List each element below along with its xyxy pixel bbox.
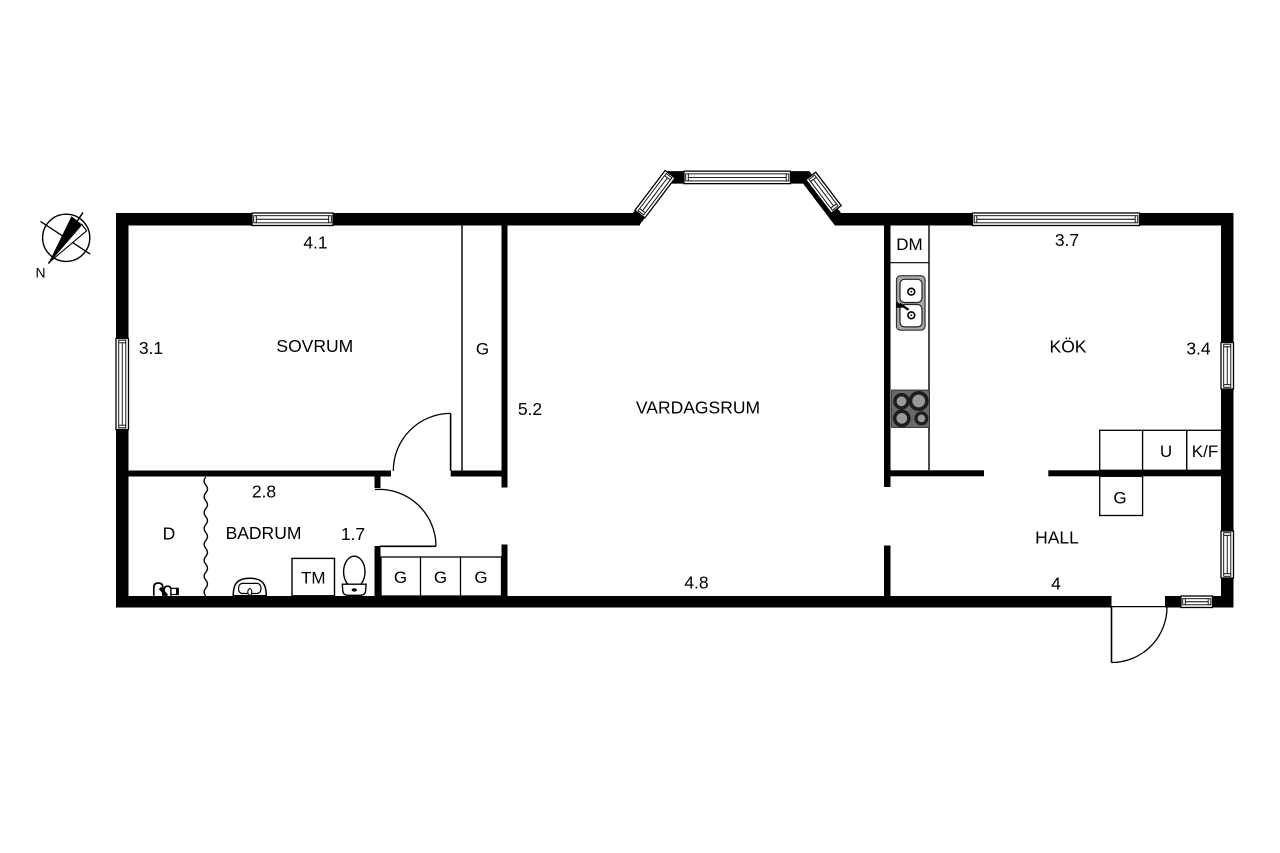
svg-text:U: U <box>1160 442 1172 461</box>
svg-text:G: G <box>434 568 447 587</box>
svg-text:4: 4 <box>1051 574 1061 594</box>
svg-text:4.1: 4.1 <box>303 232 327 252</box>
svg-text:D: D <box>163 524 176 544</box>
svg-text:5.2: 5.2 <box>518 399 542 419</box>
svg-text:3.4: 3.4 <box>1186 339 1211 359</box>
svg-text:HALL: HALL <box>1035 528 1079 548</box>
svg-text:G: G <box>1113 489 1126 508</box>
svg-text:K/F: K/F <box>1192 442 1218 461</box>
svg-text:G: G <box>474 568 487 587</box>
svg-text:SOVRUM: SOVRUM <box>276 336 353 356</box>
svg-text:TM: TM <box>301 569 326 588</box>
svg-text:KÖK: KÖK <box>1050 337 1087 357</box>
svg-text:VARDAGSRUM: VARDAGSRUM <box>636 398 760 418</box>
svg-text:N: N <box>35 265 45 281</box>
svg-text:2.8: 2.8 <box>252 482 276 502</box>
svg-text:3.1: 3.1 <box>139 338 163 358</box>
svg-text:DM: DM <box>896 235 922 254</box>
svg-text:4.8: 4.8 <box>684 573 708 593</box>
svg-text:1.7: 1.7 <box>341 524 365 544</box>
svg-text:BADRUM: BADRUM <box>226 523 302 543</box>
svg-text:3.7: 3.7 <box>1055 230 1079 250</box>
svg-text:G: G <box>476 339 489 358</box>
svg-text:G: G <box>394 568 407 587</box>
